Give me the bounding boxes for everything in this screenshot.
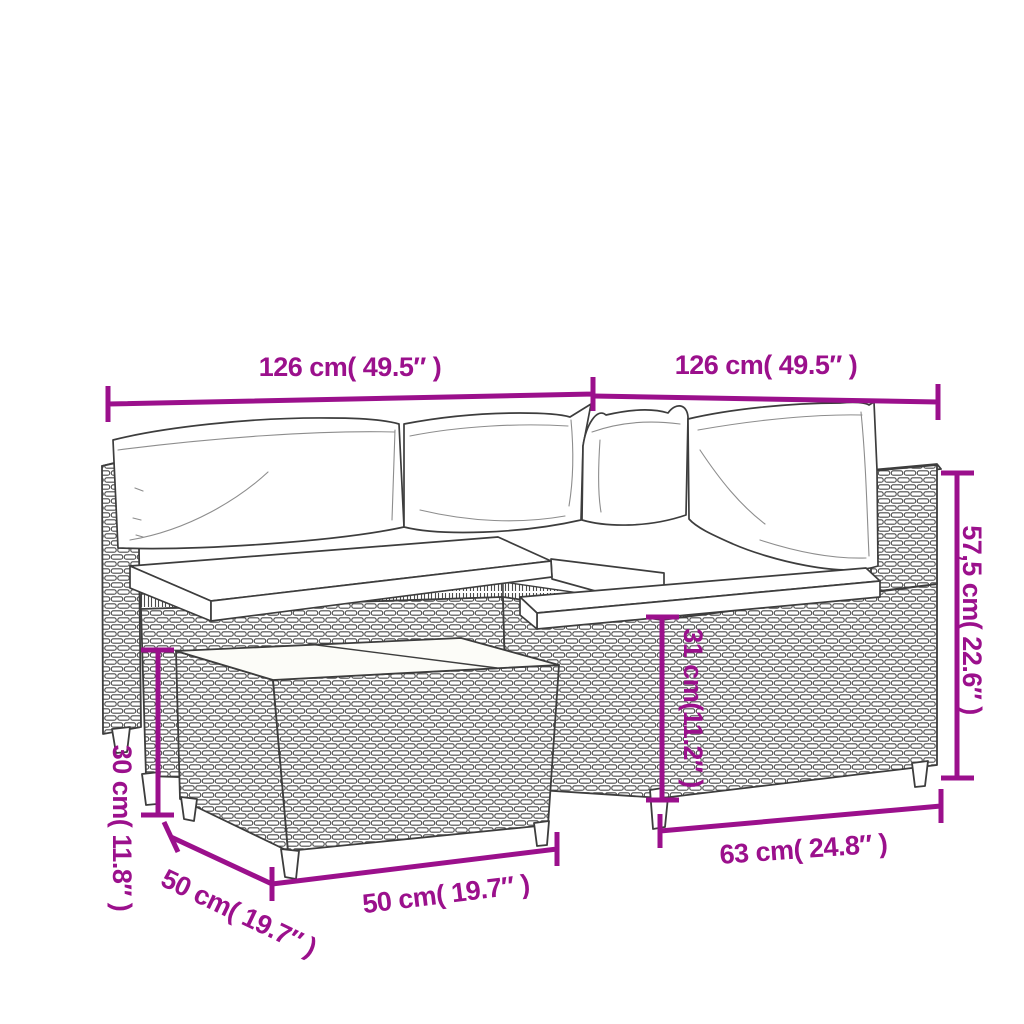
ottoman-front-face <box>273 665 559 851</box>
back-pillow-right <box>688 402 878 570</box>
product-dimension-diagram: 126 cm( 49.5″ ) 126 cm( 49.5″ ) 57,5 cm(… <box>0 0 1024 1024</box>
dimension-label-total-height: 57,5 cm( 22.6″ ) <box>957 525 987 715</box>
sofa-set-illustration: 126 cm( 49.5″ ) 126 cm( 49.5″ ) 57,5 cm(… <box>0 0 1024 1024</box>
back-pillow-left <box>113 418 404 549</box>
ottoman-foot <box>281 849 299 879</box>
dimension-label-width-left: 126 cm( 49.5″ ) <box>259 352 442 382</box>
ottoman-foot <box>181 797 197 821</box>
right-armrest-front <box>871 465 937 592</box>
right-armrest <box>871 464 941 592</box>
ottoman-foot <box>534 821 549 846</box>
dimension-width-left: 126 cm( 49.5″ ) <box>108 352 593 422</box>
dimension-label-table-width: 50 cm( 19.7″ ) <box>361 869 531 919</box>
dimension-label-table-height: 30 cm( 11.8″ ) <box>107 745 137 912</box>
dimension-total-height: 57,5 cm( 22.6″ ) <box>941 473 987 778</box>
back-pillow-mid-left <box>404 404 591 532</box>
ottoman-table <box>176 638 559 879</box>
dimension-label-seat-height: 31 cm(11.2″ ) <box>678 628 708 788</box>
dimension-label-seat-depth: 63 cm( 24.8″ ) <box>719 828 889 870</box>
dimension-label-width-right: 126 cm( 49.5″ ) <box>675 350 858 380</box>
pillow-outline <box>113 418 404 549</box>
sofa-foot <box>912 761 928 787</box>
dimension-seat-depth: 63 cm( 24.8″ ) <box>660 789 941 870</box>
pillow-outline <box>582 406 688 525</box>
back-pillow-corner <box>582 406 688 525</box>
